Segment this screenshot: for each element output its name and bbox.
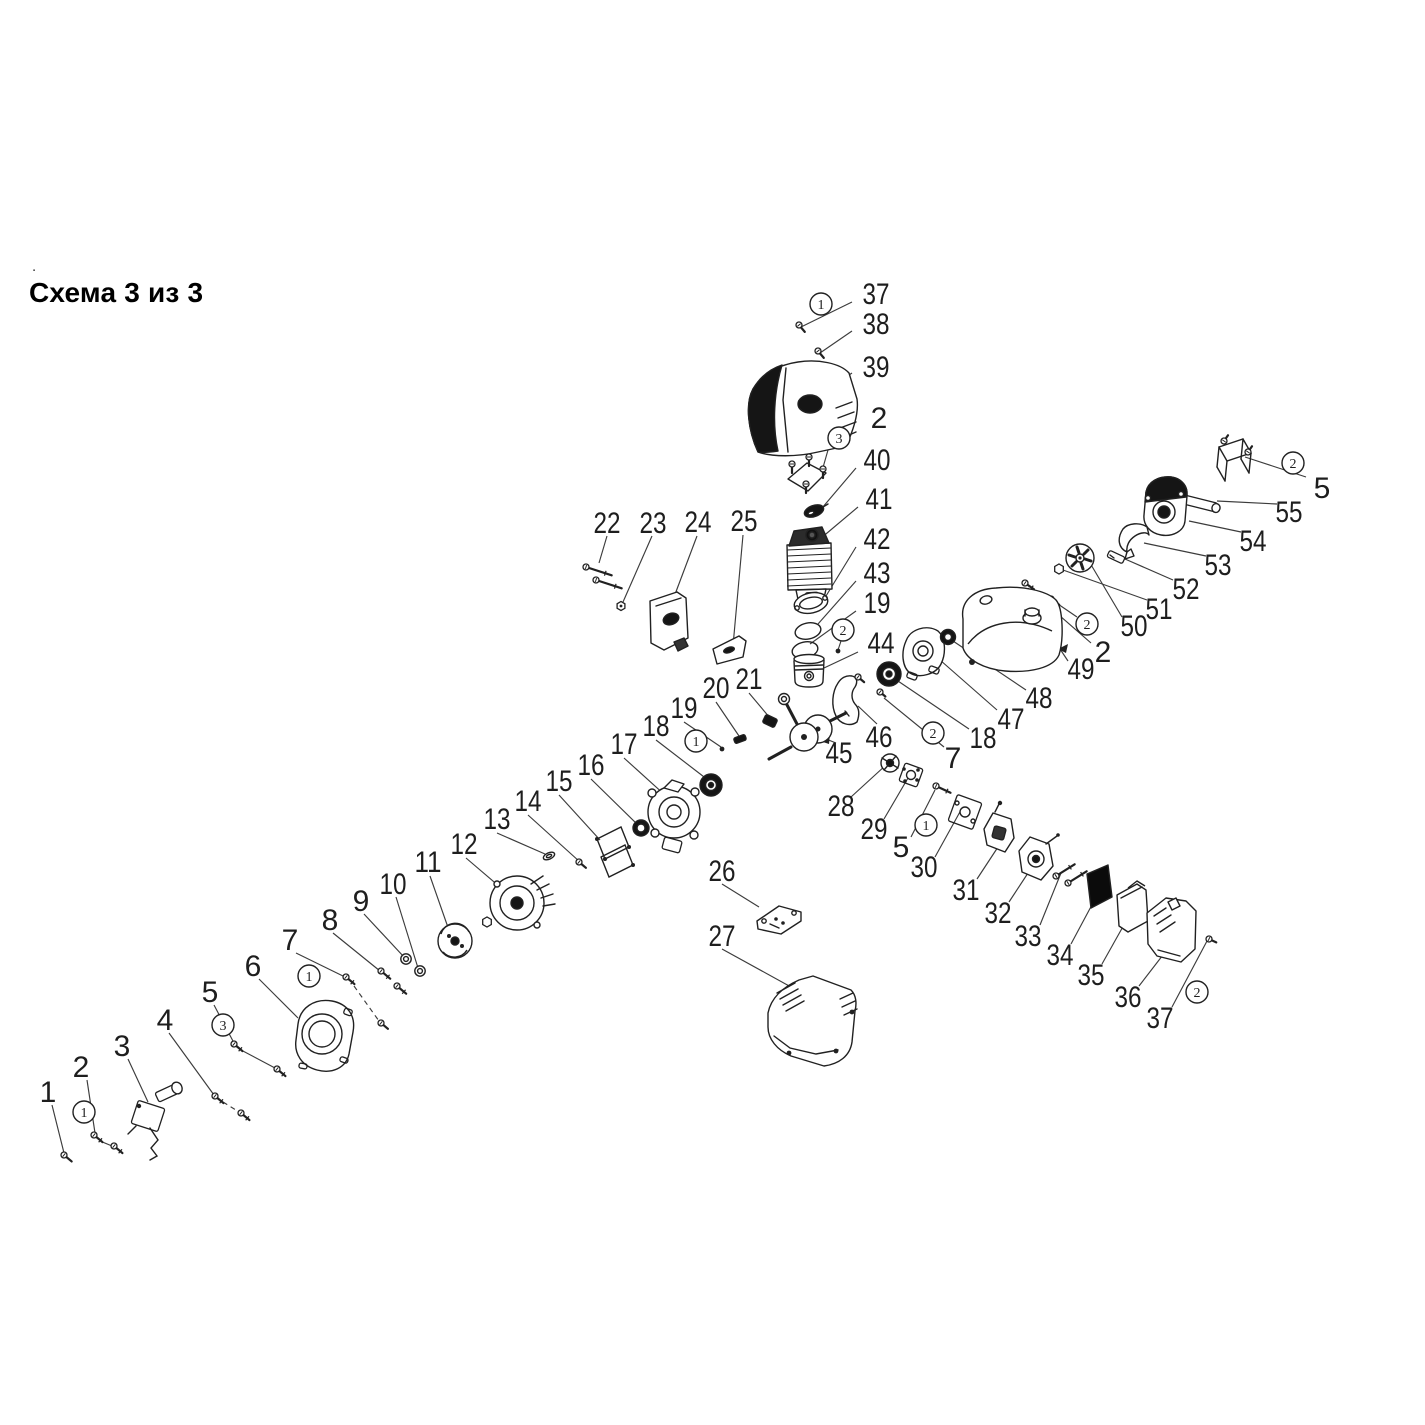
part-label-32: 32 xyxy=(985,897,1012,930)
rect-shape xyxy=(131,1100,165,1131)
part-label-52: 52 xyxy=(1173,573,1200,606)
qty-badge-1: 1 xyxy=(298,965,320,987)
part-nut-23 xyxy=(617,602,625,611)
part-label-8: 8 xyxy=(322,904,339,937)
part-dot xyxy=(834,1049,839,1054)
part-label-18: 18 xyxy=(643,710,670,743)
badge-number: 2 xyxy=(1084,618,1091,633)
part-circle xyxy=(651,829,659,837)
part-plate-26 xyxy=(757,906,801,934)
part-circle xyxy=(960,807,970,817)
part-ellipse xyxy=(794,655,824,664)
leader-line xyxy=(733,535,743,646)
part-crankcase-right-47 xyxy=(903,628,944,681)
leader-line xyxy=(1090,563,1122,617)
part-crankcase-left-17 xyxy=(648,780,700,853)
part-muffler-24 xyxy=(650,592,688,651)
part-circle xyxy=(913,641,933,661)
part-label-15: 15 xyxy=(546,765,573,798)
leader-line xyxy=(591,779,638,825)
rect-shape xyxy=(1107,550,1125,564)
part-dot xyxy=(816,727,821,732)
part-washer-10 xyxy=(415,966,425,976)
screw-thread xyxy=(614,584,616,589)
part-label-11: 11 xyxy=(415,846,442,879)
part-label-54: 54 xyxy=(1240,525,1267,558)
part-label-10: 10 xyxy=(380,868,407,901)
leader-line xyxy=(128,1059,148,1102)
qty-badge-2: 2 xyxy=(1076,613,1098,635)
part-seal-16 xyxy=(633,820,649,836)
leader-line xyxy=(52,1105,64,1153)
badge-number: 2 xyxy=(930,727,937,742)
part-label-25: 25 xyxy=(731,505,758,538)
part-dot xyxy=(620,605,623,608)
leader-line xyxy=(1125,559,1173,580)
part-circle xyxy=(1033,856,1040,863)
part-label-41: 41 xyxy=(866,483,893,516)
part-label-2: 2 xyxy=(871,402,888,435)
badge-number: 1 xyxy=(306,970,313,985)
qty-badge-3: 3 xyxy=(828,427,850,449)
part-filter-cover-36 xyxy=(1147,898,1196,962)
part-label-6: 6 xyxy=(245,950,262,983)
qty-badge-1: 1 xyxy=(810,293,832,315)
part-shape xyxy=(1145,477,1187,502)
part-label-49: 49 xyxy=(1068,653,1095,686)
leader-line xyxy=(722,949,791,987)
screw-thread xyxy=(604,571,606,576)
part-pin-14 xyxy=(576,859,586,868)
part-circle xyxy=(887,760,894,767)
leader-line xyxy=(559,795,600,840)
part-screw-plate-2 xyxy=(788,454,826,493)
part-pin-52 xyxy=(1107,550,1125,564)
part-filter-element-35 xyxy=(1117,881,1148,932)
part-circle xyxy=(648,789,656,797)
part-circle xyxy=(415,966,425,976)
badge-number: 1 xyxy=(818,298,825,313)
part-circle xyxy=(494,881,500,887)
part-dot xyxy=(631,863,635,867)
link-line xyxy=(223,1102,239,1112)
part-label-40: 40 xyxy=(864,444,891,477)
part-line xyxy=(1081,563,1083,569)
part-label-12: 12 xyxy=(451,828,478,861)
rect-shape xyxy=(299,1063,308,1069)
part-line xyxy=(1046,836,1057,844)
part-dot xyxy=(720,747,725,752)
part-dot xyxy=(969,659,975,665)
part-label-22: 22 xyxy=(594,507,621,540)
part-circle xyxy=(451,937,459,945)
part-circle xyxy=(886,671,892,677)
badge-number: 1 xyxy=(81,1106,88,1121)
part-label-43: 43 xyxy=(864,557,891,590)
part-label-24: 24 xyxy=(685,506,712,539)
leader-line xyxy=(364,914,404,957)
part-label-42: 42 xyxy=(864,523,891,556)
part-dot xyxy=(998,801,1002,805)
part-label-23: 23 xyxy=(640,507,667,540)
part-label-1: 1 xyxy=(40,1076,57,1109)
part-dot xyxy=(801,734,807,740)
part-circle xyxy=(690,831,698,839)
part-dot xyxy=(603,857,607,861)
diagram-page: . Схема 3 из 3 3738392404142431944222324… xyxy=(0,0,1425,1425)
part-circle xyxy=(691,788,699,796)
part-dot xyxy=(627,845,631,849)
part-screw-38 xyxy=(815,348,824,358)
part-dot xyxy=(902,767,906,771)
leader-line xyxy=(674,536,697,597)
part-line xyxy=(795,665,823,666)
badge-number: 2 xyxy=(1194,986,1201,1001)
part-line xyxy=(1249,453,1251,473)
part-line xyxy=(1069,555,1075,557)
qty-badge-1: 1 xyxy=(73,1101,95,1123)
part-dot xyxy=(915,778,919,782)
qty-badge-2: 2 xyxy=(922,722,944,744)
part-screw-1 xyxy=(61,1152,72,1161)
nut-shape xyxy=(483,917,492,927)
part-ellipse xyxy=(1025,608,1039,616)
part-dot xyxy=(916,768,920,772)
part-circle xyxy=(955,801,959,805)
part-labels: 3738392404142431944222324251314151617181… xyxy=(40,278,1331,1109)
rect-shape xyxy=(992,826,1007,841)
leader-line xyxy=(851,765,886,797)
part-line xyxy=(1225,461,1227,481)
part-bolts-22 xyxy=(583,564,622,589)
link-line xyxy=(241,1050,275,1068)
part-label-17: 17 xyxy=(611,728,638,761)
part-circle xyxy=(809,532,815,538)
leader-lines xyxy=(52,302,1306,1153)
part-label-30: 30 xyxy=(911,851,938,884)
part-label-7: 7 xyxy=(945,742,962,775)
part-clamp-53 xyxy=(1119,524,1149,559)
part-bearing-48 xyxy=(941,630,956,645)
part-clutch-11 xyxy=(438,923,472,958)
part-screws-2 xyxy=(91,1132,122,1153)
part-label-19: 19 xyxy=(671,692,698,725)
part-label-44: 44 xyxy=(868,627,895,660)
part-ellipse xyxy=(542,851,556,862)
part-flywheel-12 xyxy=(490,876,555,930)
leader-line xyxy=(977,847,998,879)
part-label-18: 18 xyxy=(970,722,997,755)
part-stand-15 xyxy=(595,827,635,877)
part-filter-pad-34 xyxy=(1087,865,1112,908)
part-gasket-46 xyxy=(833,676,859,725)
part-label-31: 31 xyxy=(953,874,980,907)
leader-line xyxy=(884,778,908,819)
part-line xyxy=(531,876,543,884)
part-label-5: 5 xyxy=(893,831,910,864)
part-line xyxy=(1217,447,1219,467)
part-screw-19-left xyxy=(720,747,725,752)
part-screws-33 xyxy=(1053,864,1087,886)
part-label-5: 5 xyxy=(1314,472,1331,505)
qty-badge-2: 2 xyxy=(832,619,854,641)
part-label-3: 3 xyxy=(114,1030,131,1063)
part-screw-37-cover xyxy=(1206,936,1216,942)
part-ellipse xyxy=(798,395,822,413)
part-clutch-plate-29 xyxy=(899,763,923,787)
part-label-2: 2 xyxy=(1095,636,1112,669)
rect-shape xyxy=(762,714,778,728)
leader-line xyxy=(259,979,298,1018)
part-label-33: 33 xyxy=(1015,920,1042,953)
part-label-46: 46 xyxy=(866,721,893,754)
leader-line xyxy=(935,810,961,857)
leader-line xyxy=(1102,923,1125,964)
part-bottom-cover-27 xyxy=(768,976,857,1066)
leader-line xyxy=(1063,570,1147,600)
leader-line xyxy=(820,331,852,353)
part-circle xyxy=(709,783,714,788)
part-label-35: 35 xyxy=(1078,959,1105,992)
part-fuel-tank-49 xyxy=(963,587,1063,671)
leader-line xyxy=(1144,543,1206,556)
badge-number: 1 xyxy=(923,819,930,834)
badge-number: 2 xyxy=(1290,457,1297,472)
part-dot xyxy=(1056,833,1060,837)
part-label-20: 20 xyxy=(703,672,730,705)
part-circle xyxy=(309,1021,335,1047)
part-label-26: 26 xyxy=(709,855,736,888)
part-label-45: 45 xyxy=(826,737,853,770)
part-nut-51 xyxy=(1055,564,1064,574)
part-fan-cover-6 xyxy=(296,1000,354,1071)
part-label-9: 9 xyxy=(353,885,370,918)
part-dot xyxy=(836,649,841,654)
part-gear-housing-55 xyxy=(1144,477,1187,535)
part-bracket-plate-25 xyxy=(713,636,746,664)
part-circle xyxy=(945,634,952,641)
nut-shape xyxy=(1055,564,1064,574)
part-circle xyxy=(805,672,814,681)
part-filter-base-32 xyxy=(1019,833,1060,880)
part-flywheel-nut xyxy=(483,917,492,927)
part-dot xyxy=(447,934,451,938)
part-label-48: 48 xyxy=(1026,682,1053,715)
part-line xyxy=(1110,555,1114,558)
part-label-51: 51 xyxy=(1146,593,1173,626)
part-plug-13 xyxy=(542,851,556,862)
part-washer-9 xyxy=(401,954,411,964)
part-label-38: 38 xyxy=(863,308,890,341)
part-line xyxy=(1217,467,1225,481)
rect-shape xyxy=(662,837,682,853)
part-circle xyxy=(637,824,645,832)
part-dot xyxy=(460,944,464,948)
part-shape xyxy=(1119,524,1149,552)
part-circle xyxy=(511,897,523,909)
leader-line xyxy=(1189,521,1241,532)
part-pin-7 xyxy=(877,689,885,696)
badge-number: 3 xyxy=(220,1019,227,1034)
part-label-21: 21 xyxy=(736,663,763,696)
part-label-19: 19 xyxy=(864,587,891,620)
leader-line xyxy=(822,468,856,508)
part-circle xyxy=(907,771,916,780)
part-line xyxy=(128,1126,136,1134)
part-dot xyxy=(850,1010,855,1015)
part-line xyxy=(1077,547,1079,553)
badge-number: 1 xyxy=(693,735,700,750)
part-line xyxy=(786,703,797,724)
part-damper-21 xyxy=(762,714,778,728)
part-label-39: 39 xyxy=(863,351,890,384)
qty-badge-1: 1 xyxy=(915,814,937,836)
badge-number: 3 xyxy=(836,432,843,447)
part-bearing-18-left xyxy=(700,774,722,796)
part-key-20 xyxy=(733,734,746,744)
leader-line xyxy=(824,652,858,668)
part-screws-8 xyxy=(378,968,406,994)
part-circle xyxy=(1158,506,1170,518)
part-line xyxy=(601,845,633,877)
part-line xyxy=(150,1128,158,1160)
leader-line xyxy=(497,833,545,854)
part-dot xyxy=(137,1104,141,1108)
badge-number: 2 xyxy=(840,624,847,639)
part-circle xyxy=(1179,492,1184,497)
part-label-7: 7 xyxy=(282,924,299,957)
screw-shaft xyxy=(586,567,612,575)
leader-line xyxy=(1217,501,1277,504)
leader-line xyxy=(599,536,607,563)
part-label-36: 36 xyxy=(1115,981,1142,1014)
part-screw-37 xyxy=(796,322,805,332)
part-dot xyxy=(1078,556,1081,559)
part-label-34: 34 xyxy=(1047,939,1074,972)
part-line xyxy=(995,804,999,812)
part-piston-44 xyxy=(794,655,824,688)
part-ellipse xyxy=(170,1080,184,1095)
qty-badge-2: 2 xyxy=(1186,981,1208,1003)
leader-line xyxy=(333,933,380,971)
part-clutch-drum-28 xyxy=(881,754,899,772)
part-line xyxy=(769,747,791,759)
part-dot xyxy=(787,1051,792,1056)
part-circle xyxy=(401,954,411,964)
link-line xyxy=(354,986,379,1021)
part-shape xyxy=(1087,865,1112,908)
part-label-55: 55 xyxy=(1276,496,1303,529)
part-circle xyxy=(779,694,790,705)
rect-shape xyxy=(733,734,746,744)
qty-badge-1: 1 xyxy=(685,730,707,752)
part-label-13: 13 xyxy=(484,803,511,836)
part-line xyxy=(543,904,555,906)
leader-line xyxy=(1040,873,1061,925)
qty-badge-2: 2 xyxy=(1282,452,1304,474)
part-line xyxy=(1241,459,1249,473)
part-line xyxy=(795,669,823,670)
part-label-37: 37 xyxy=(1147,1002,1174,1035)
part-label-37: 37 xyxy=(863,278,890,311)
part-dot xyxy=(781,921,785,925)
part-shape xyxy=(833,676,859,725)
part-label-5: 5 xyxy=(202,976,219,1009)
part-clip-screw-19 xyxy=(836,649,841,654)
part-label-28: 28 xyxy=(828,790,855,823)
leader-line xyxy=(716,702,739,736)
part-circle xyxy=(534,922,540,928)
part-label-53: 53 xyxy=(1205,549,1232,582)
part-label-14: 14 xyxy=(515,785,542,818)
part-circle xyxy=(1146,496,1151,501)
part-screw-5-carb xyxy=(933,783,951,793)
part-label-27: 27 xyxy=(709,920,736,953)
part-label-4: 4 xyxy=(157,1004,174,1037)
part-dot xyxy=(903,779,907,783)
part-label-16: 16 xyxy=(578,749,605,782)
part-line xyxy=(597,827,629,859)
part-circle xyxy=(659,797,689,827)
part-label-50: 50 xyxy=(1121,610,1148,643)
part-bearing-18-right xyxy=(877,662,901,686)
part-ignition-coil-3 xyxy=(128,1080,184,1160)
part-dot xyxy=(774,917,778,921)
part-dot xyxy=(595,837,599,841)
part-circle xyxy=(971,819,975,823)
leader-line xyxy=(623,536,652,602)
part-label-29: 29 xyxy=(861,813,888,846)
part-label-2: 2 xyxy=(73,1051,90,1084)
part-carburetor-31 xyxy=(984,801,1014,852)
part-line xyxy=(1085,559,1091,561)
exploded-parts-diagram: 3738392404142431944222324251314151617181… xyxy=(0,0,1425,1425)
screw-shaft xyxy=(596,580,622,588)
part-label-47: 47 xyxy=(998,703,1025,736)
qty-badge-3: 3 xyxy=(212,1014,234,1036)
part-starter-pulley-50 xyxy=(1066,544,1094,572)
